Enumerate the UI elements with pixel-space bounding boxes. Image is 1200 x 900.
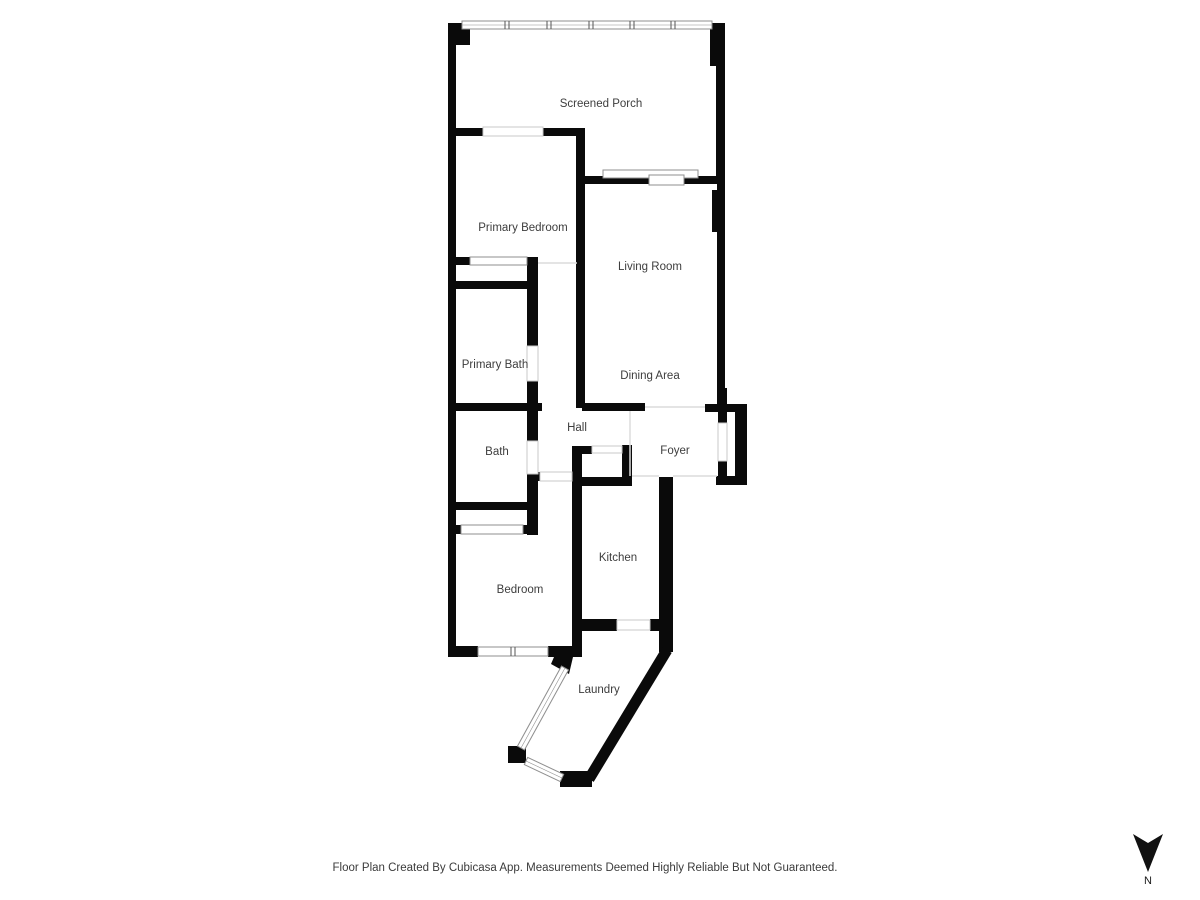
closet-band: [461, 525, 523, 534]
wall-segment: [527, 257, 538, 346]
floor-plan-svg: Screened Porch Primary Bedroom Living Ro…: [0, 0, 1200, 900]
wall-segment: [718, 461, 727, 477]
wall-segment: [572, 446, 592, 454]
wall-segment: [650, 619, 673, 631]
wall-segment: [717, 176, 725, 407]
room-label-bath: Bath: [485, 446, 509, 458]
wall-segment: [448, 257, 470, 265]
wall-segment: [572, 477, 632, 486]
wall-segment: [453, 281, 535, 289]
front-door-opening: [718, 423, 727, 461]
wall-segment: [589, 650, 667, 779]
door-opening: [527, 441, 538, 474]
wall-segment: [448, 502, 538, 510]
wall-segment: [718, 388, 727, 423]
floor-plan-page: Screened Porch Primary Bedroom Living Ro…: [0, 0, 1200, 900]
north-label: N: [1144, 875, 1152, 887]
wall-segment: [716, 476, 747, 485]
door-opening: [540, 472, 572, 481]
room-label-bedroom: Bedroom: [497, 584, 544, 596]
wall-segment: [716, 24, 725, 178]
room-label-dining-area: Dining Area: [620, 370, 680, 382]
window-midline: [526, 761, 562, 778]
door-opening: [617, 620, 650, 630]
room-label-foyer: Foyer: [660, 445, 690, 457]
wall-segment: [582, 403, 645, 411]
wall-segment: [448, 23, 456, 657]
room-label-laundry: Laundry: [578, 684, 620, 696]
walls: [448, 23, 747, 787]
door-opening: [592, 446, 622, 453]
room-label-screened-porch: Screened Porch: [560, 98, 642, 110]
room-label-primary-bedroom: Primary Bedroom: [478, 222, 567, 234]
closet-band: [470, 257, 527, 265]
wall-segment: [523, 525, 538, 534]
window: [478, 647, 548, 656]
wall-segment: [735, 404, 747, 485]
room-label-primary-bath: Primary Bath: [462, 359, 528, 371]
wall-segment: [448, 128, 483, 136]
wall-segment: [576, 619, 617, 631]
wall-segment: [560, 771, 592, 787]
north-indicator: N: [1133, 834, 1163, 887]
window-midline: [521, 668, 565, 748]
window-opening: [649, 175, 684, 185]
wall-segment: [548, 646, 573, 657]
room-label-kitchen: Kitchen: [599, 552, 637, 564]
room-label-living-room: Living Room: [618, 261, 682, 273]
door-opening: [527, 346, 538, 381]
wall-segment: [448, 403, 542, 411]
wall-segment: [448, 525, 461, 534]
room-label-hall: Hall: [567, 422, 587, 434]
footer-disclaimer: Floor Plan Created By Cubicasa App. Meas…: [0, 862, 1170, 874]
door-opening: [483, 127, 543, 136]
wall-segment: [448, 646, 478, 657]
wall-segment: [576, 128, 585, 408]
